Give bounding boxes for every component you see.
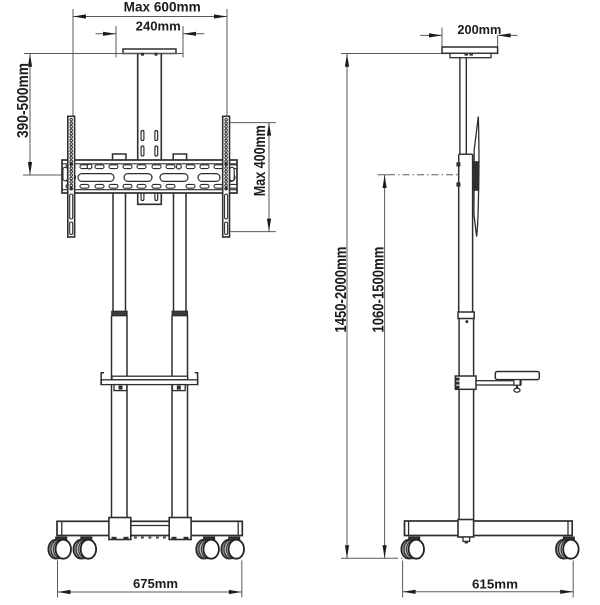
svg-text:675mm: 675mm: [133, 576, 178, 591]
svg-text:Max 600mm: Max 600mm: [124, 0, 201, 15]
svg-text:Max 400mm: Max 400mm: [252, 125, 269, 196]
svg-text:240mm: 240mm: [136, 18, 181, 33]
svg-text:200mm: 200mm: [457, 22, 501, 37]
svg-text:615mm: 615mm: [472, 576, 518, 591]
